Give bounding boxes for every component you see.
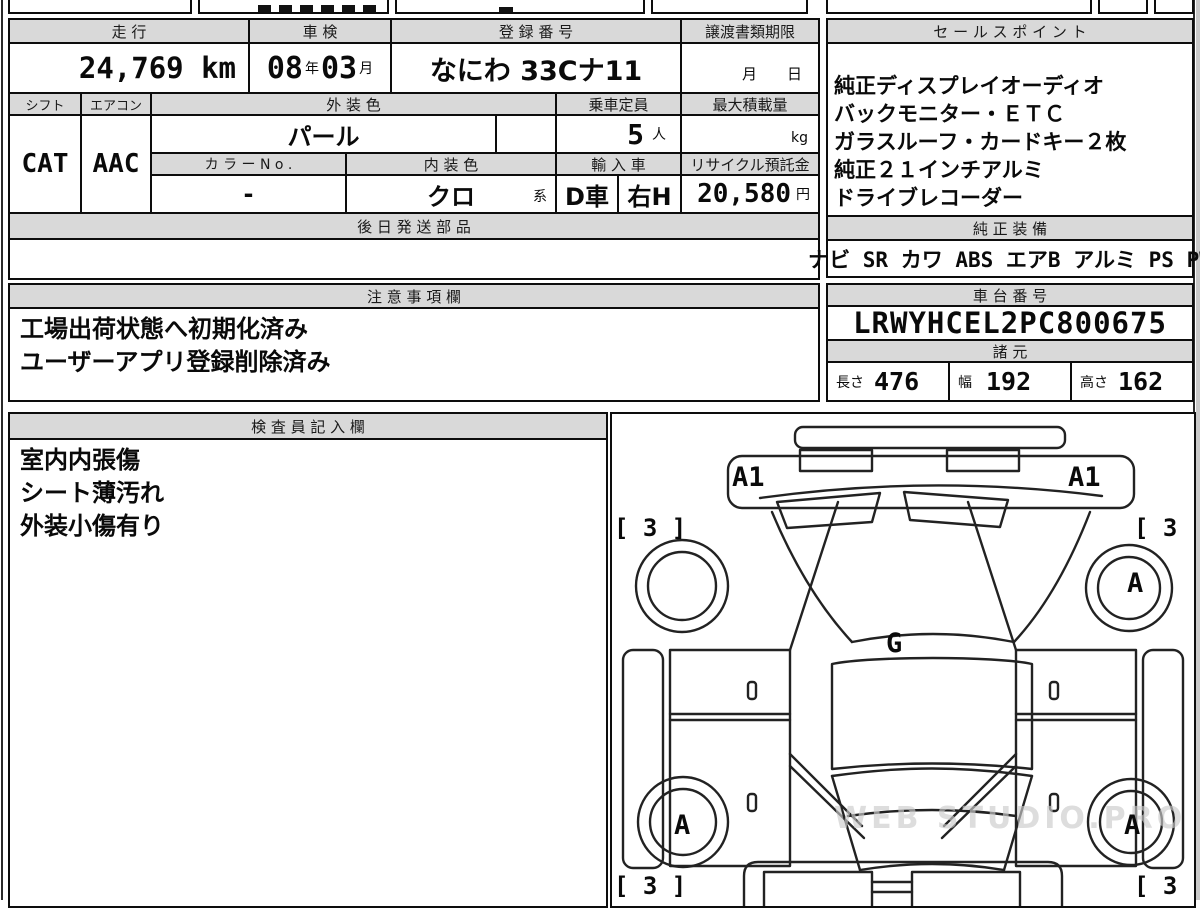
sales-point-line: 純正２１インチアルミ — [834, 156, 1186, 184]
interior-color-value: クロ — [427, 177, 475, 212]
inspection-header: 車 検 — [248, 18, 392, 44]
chassis-no-value: LRWYHCEL2PC800675 — [826, 305, 1194, 341]
damage-label-rear-left-wheel: A — [674, 810, 690, 841]
cut-off-cell — [651, 0, 808, 14]
chassis-no-header: 車 台 番 号 — [826, 283, 1194, 307]
note-line: ユーザーアプリ登録削除済み — [20, 346, 808, 379]
inspection-month-unit: 月 — [359, 58, 373, 78]
damage-label-front-bumper-right: A1 — [1068, 462, 1101, 493]
import-type-value: D車 — [555, 174, 619, 214]
height-value: 162 — [1118, 367, 1163, 396]
import-car-header: 輸 入 車 — [555, 152, 682, 176]
color-no-value: - — [150, 174, 347, 214]
wiper-right — [904, 492, 1008, 527]
door-handle-right-front — [1050, 682, 1058, 699]
exterior-color-header: 外 装 色 — [150, 92, 557, 116]
recycle-deposit-unit: 円 — [796, 184, 810, 204]
exterior-color-suffix-cell — [495, 114, 557, 154]
cut-off-cell — [8, 0, 192, 14]
aircon-value: AAC — [80, 114, 152, 214]
length-label: 長さ — [836, 372, 864, 392]
cut-off-cell — [826, 0, 1092, 14]
registration-value: なにわ 33Cナ11 — [390, 42, 682, 94]
recycle-deposit-value: 20,580 — [697, 179, 791, 209]
inspection-value: 08 年 03 月 — [248, 42, 392, 94]
auction-sheet: { "colors":{"header_bg":"#d9d9d9","borde… — [0, 0, 1200, 900]
inspection-year: 08 — [267, 51, 303, 86]
rear-plate-right — [912, 872, 1020, 906]
cut-off-cell — [198, 0, 389, 14]
cut-off-cell — [1154, 0, 1194, 14]
front-plate-left — [800, 450, 872, 471]
a-pillar-left — [790, 502, 838, 650]
height-cell: 高さ 162 — [1070, 361, 1194, 402]
damage-label-glass: G — [886, 628, 902, 659]
interior-color-cell: クロ 系 — [345, 174, 557, 214]
transfer-month-unit: 月 — [742, 63, 757, 84]
capacity-value: 5 — [627, 118, 644, 151]
transfer-docs-header: 譲渡書類期限 — [680, 18, 820, 44]
transfer-day-unit: 日 — [787, 63, 802, 84]
a-pillar-right — [968, 502, 1016, 650]
cut-off-text-fragment — [258, 5, 376, 12]
cut-off-cell — [395, 0, 645, 14]
front-left-wheel — [636, 540, 728, 632]
capacity-header: 乗車定員 — [555, 92, 682, 116]
damage-label-rear-fender-right: [ 3 ] — [1134, 872, 1194, 900]
hood-bottom-arc — [852, 634, 1014, 642]
interior-color-header: 内 装 色 — [345, 152, 557, 176]
equipment-header: 純 正 装 備 — [826, 215, 1194, 241]
aircon-header: エアコン — [80, 92, 152, 116]
later-parts-header: 後 日 発 送 部 品 — [8, 212, 820, 240]
width-label: 幅 — [958, 372, 972, 392]
recycle-deposit-header: リサイクル預託金 — [680, 152, 820, 176]
sales-point-line: ドライブレコーダー — [834, 184, 1186, 212]
notes-body: 工場出荷状態へ初期化済み ユーザーアプリ登録削除済み — [8, 307, 820, 402]
dimensions-header: 諸 元 — [826, 339, 1194, 363]
inspector-note-line: 室内内張傷 — [20, 444, 596, 477]
damage-label-front-bumper-left: A1 — [732, 462, 765, 493]
inspection-month: 03 — [321, 51, 357, 86]
registration-header: 登 録 番 号 — [390, 18, 682, 44]
cut-off-cell — [1098, 0, 1148, 14]
interior-color-suffix: 系 — [533, 186, 547, 206]
roof-bar — [795, 427, 1065, 448]
height-label: 高さ — [1080, 372, 1108, 392]
later-parts-value-cell — [8, 238, 820, 280]
recycle-deposit-cell: 20,580 円 — [680, 174, 820, 214]
inspector-note-line: シート薄汚れ — [20, 477, 596, 510]
door-handle-left-front — [748, 682, 756, 699]
equipment-value: ナビ SR カワ ABS エアB アルミ PS PW — [826, 239, 1194, 278]
car-diagram-box: WEB STUDIO.PRO A1 A1 [ 3 ] [ 3 ] A G A A… — [610, 412, 1196, 908]
sales-points-header: セ ー ル ス ポ イ ン ト — [826, 18, 1194, 44]
mileage-header: 走 行 — [8, 18, 250, 44]
note-line: 工場出荷状態へ初期化済み — [20, 313, 808, 346]
inspector-note-line: 外装小傷有り — [20, 510, 596, 543]
inspector-notes-body: 室内内張傷 シート薄汚れ 外装小傷有り — [8, 438, 608, 908]
width-value: 192 — [986, 367, 1031, 396]
front-plate-right — [947, 450, 1019, 471]
length-value: 476 — [874, 367, 919, 396]
mileage-value: 24,769 km — [8, 42, 250, 94]
width-cell: 幅 192 — [948, 361, 1072, 402]
capacity-value-cell: 5 人 — [555, 114, 682, 154]
cut-off-text-fragment — [499, 7, 513, 12]
shift-header: シフト — [8, 92, 82, 116]
damage-label-front-fender-left: [ 3 ] — [614, 514, 686, 542]
damage-label-front-right-wheel: A — [1127, 568, 1143, 599]
damage-label-rear-right-wheel: A — [1124, 810, 1140, 841]
max-load-header: 最大積載量 — [680, 92, 820, 116]
rear-bumper — [744, 862, 1062, 906]
hood-side-left — [772, 512, 852, 642]
cowl-arc — [760, 485, 1102, 498]
rear-plate-left — [764, 872, 872, 906]
inspector-notes-header: 検 査 員 記 入 欄 — [8, 412, 608, 440]
car-diagram: WEB STUDIO.PRO A1 A1 [ 3 ] [ 3 ] A G A A… — [612, 414, 1194, 906]
inspection-year-unit: 年 — [305, 58, 319, 78]
max-load-value-cell: kg — [680, 114, 820, 154]
front-left-wheel-inner — [648, 552, 716, 620]
shift-value: CAT — [8, 114, 82, 214]
page-right-margin — [1196, 0, 1200, 900]
color-no-header: カ ラ ー N o . — [150, 152, 347, 176]
sales-point-line: バックモニター・ＥＴＣ — [834, 100, 1186, 128]
sales-points-body: 純正ディスプレイオーディオ バックモニター・ＥＴＣ ガラスルーフ・カードキー２枚… — [826, 42, 1194, 217]
exterior-color-value: パール — [150, 114, 497, 154]
sales-point-line: 純正ディスプレイオーディオ — [834, 72, 1186, 100]
door-handle-left-rear — [748, 794, 756, 811]
transfer-docs-value: 月 日 — [680, 42, 820, 94]
sill-left — [623, 650, 663, 868]
damage-label-rear-fender-left: [ 3 ] — [614, 872, 686, 900]
handle-value: 右H — [617, 174, 682, 214]
notes-header: 注 意 事 項 欄 — [8, 283, 820, 309]
capacity-unit: 人 — [652, 124, 666, 144]
page-left-edge — [1, 0, 3, 900]
max-load-unit: kg — [791, 130, 808, 146]
wiper-left — [777, 493, 880, 528]
sales-point-line: ガラスルーフ・カードキー２枚 — [834, 128, 1186, 156]
rear-glass-bottom — [860, 864, 1004, 870]
hood-side-right — [1014, 512, 1090, 642]
roof-panel — [832, 658, 1032, 769]
damage-label-front-fender-right: [ 3 ] — [1134, 514, 1194, 542]
length-cell: 長さ 476 — [826, 361, 950, 402]
